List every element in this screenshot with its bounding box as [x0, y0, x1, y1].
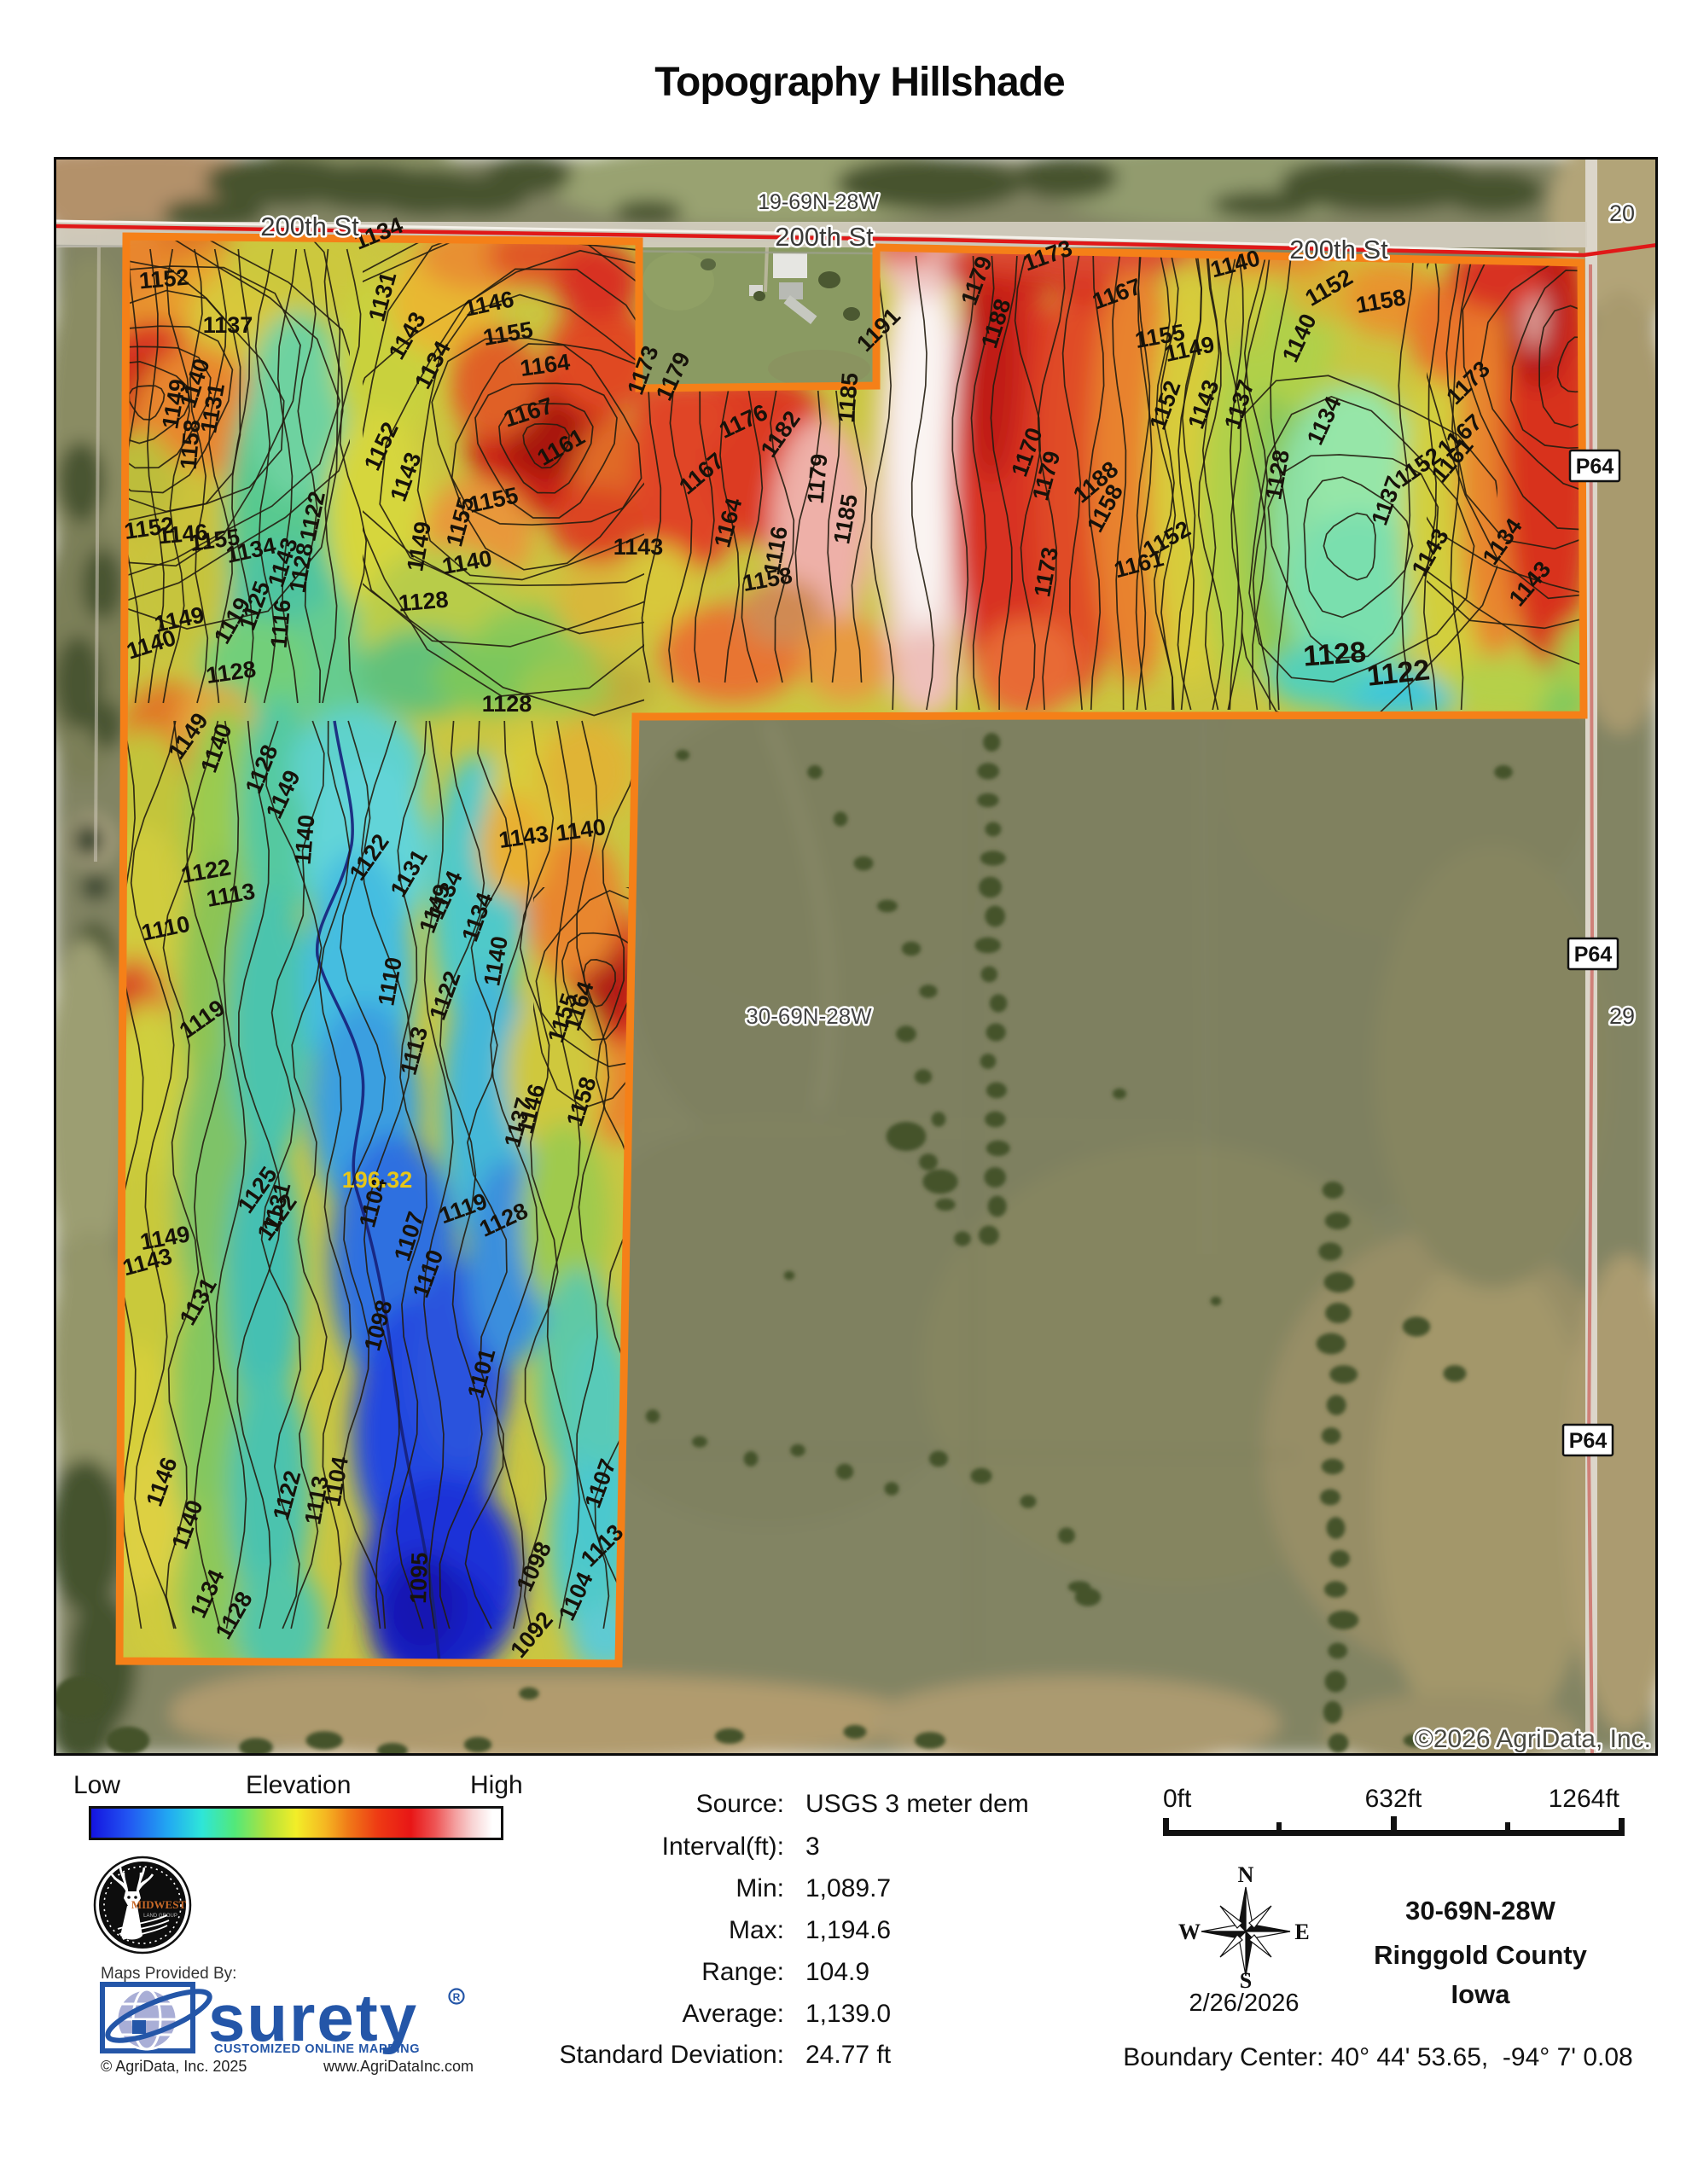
svg-text:19-69N-28W: 19-69N-28W — [758, 190, 879, 214]
svg-text:0ft: 0ft — [1163, 1785, 1192, 1813]
svg-text:W: W — [1178, 1920, 1201, 1944]
svg-text:1158: 1158 — [176, 419, 206, 471]
svg-text:1137: 1137 — [203, 312, 253, 338]
svg-text:1140: 1140 — [290, 814, 320, 866]
svg-text:1095: 1095 — [405, 1552, 433, 1604]
svg-text:MIDWEST: MIDWEST — [131, 1898, 187, 1911]
svg-text:1179: 1179 — [803, 453, 833, 505]
svg-text:196.32: 196.32 — [342, 1167, 413, 1193]
svg-text:P64: P64 — [1569, 1429, 1608, 1453]
svg-text:1152: 1152 — [138, 264, 190, 294]
svg-text:632ft: 632ft — [1365, 1785, 1422, 1813]
svg-text:E: E — [1294, 1920, 1309, 1944]
svg-text:200th St: 200th St — [775, 222, 874, 252]
svg-text:1128: 1128 — [482, 691, 532, 717]
svg-text:1264ft: 1264ft — [1549, 1785, 1620, 1813]
svg-text:N: N — [1238, 1865, 1254, 1887]
svg-text:©2026 AgriData, Inc.: ©2026 AgriData, Inc. — [1415, 1725, 1651, 1753]
svg-text:P64: P64 — [1574, 943, 1613, 967]
svg-text:1128: 1128 — [398, 587, 450, 617]
svg-text:30-69N-28W: 30-69N-28W — [746, 1003, 872, 1029]
svg-text:1128: 1128 — [1302, 636, 1367, 673]
svg-text:200th St: 200th St — [1289, 235, 1388, 264]
svg-text:P64: P64 — [1576, 455, 1614, 479]
svg-text:200th St: 200th St — [260, 212, 359, 241]
svg-text:1143: 1143 — [613, 534, 664, 560]
svg-text:1122: 1122 — [1365, 653, 1431, 693]
svg-text:1116: 1116 — [266, 598, 296, 648]
svg-text:CUSTOMIZED ONLINE MAPPING: CUSTOMIZED ONLINE MAPPING — [214, 2042, 420, 2056]
svg-text:1185: 1185 — [834, 372, 863, 424]
svg-text:29: 29 — [1609, 1003, 1635, 1029]
svg-text:20: 20 — [1609, 200, 1635, 226]
